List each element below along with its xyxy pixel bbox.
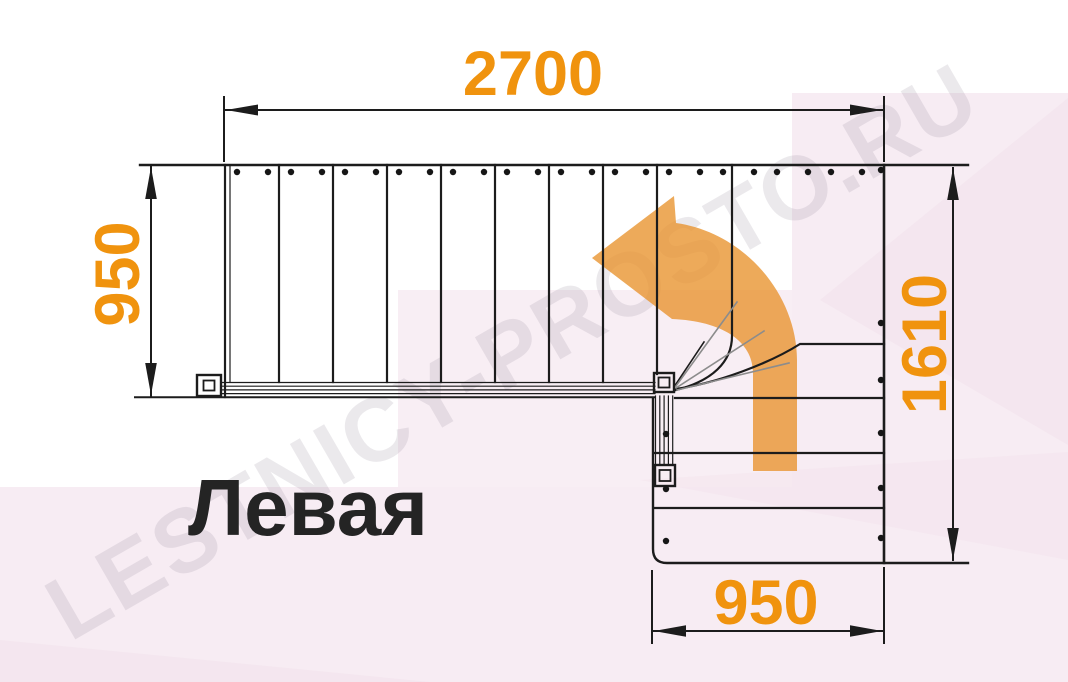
stair-plan-page: LESTNICY-PROSTO.RU [0,0,1068,682]
plan-title: Левая [188,463,428,552]
stair-plan-drawing: LESTNICY-PROSTO.RU [0,0,1068,682]
dimension-top-label: 2700 [463,39,603,109]
dimension-right-label: 1610 [890,274,960,414]
dimension-left-label: 950 [83,221,153,326]
dimension-bottom-label: 950 [713,568,818,638]
